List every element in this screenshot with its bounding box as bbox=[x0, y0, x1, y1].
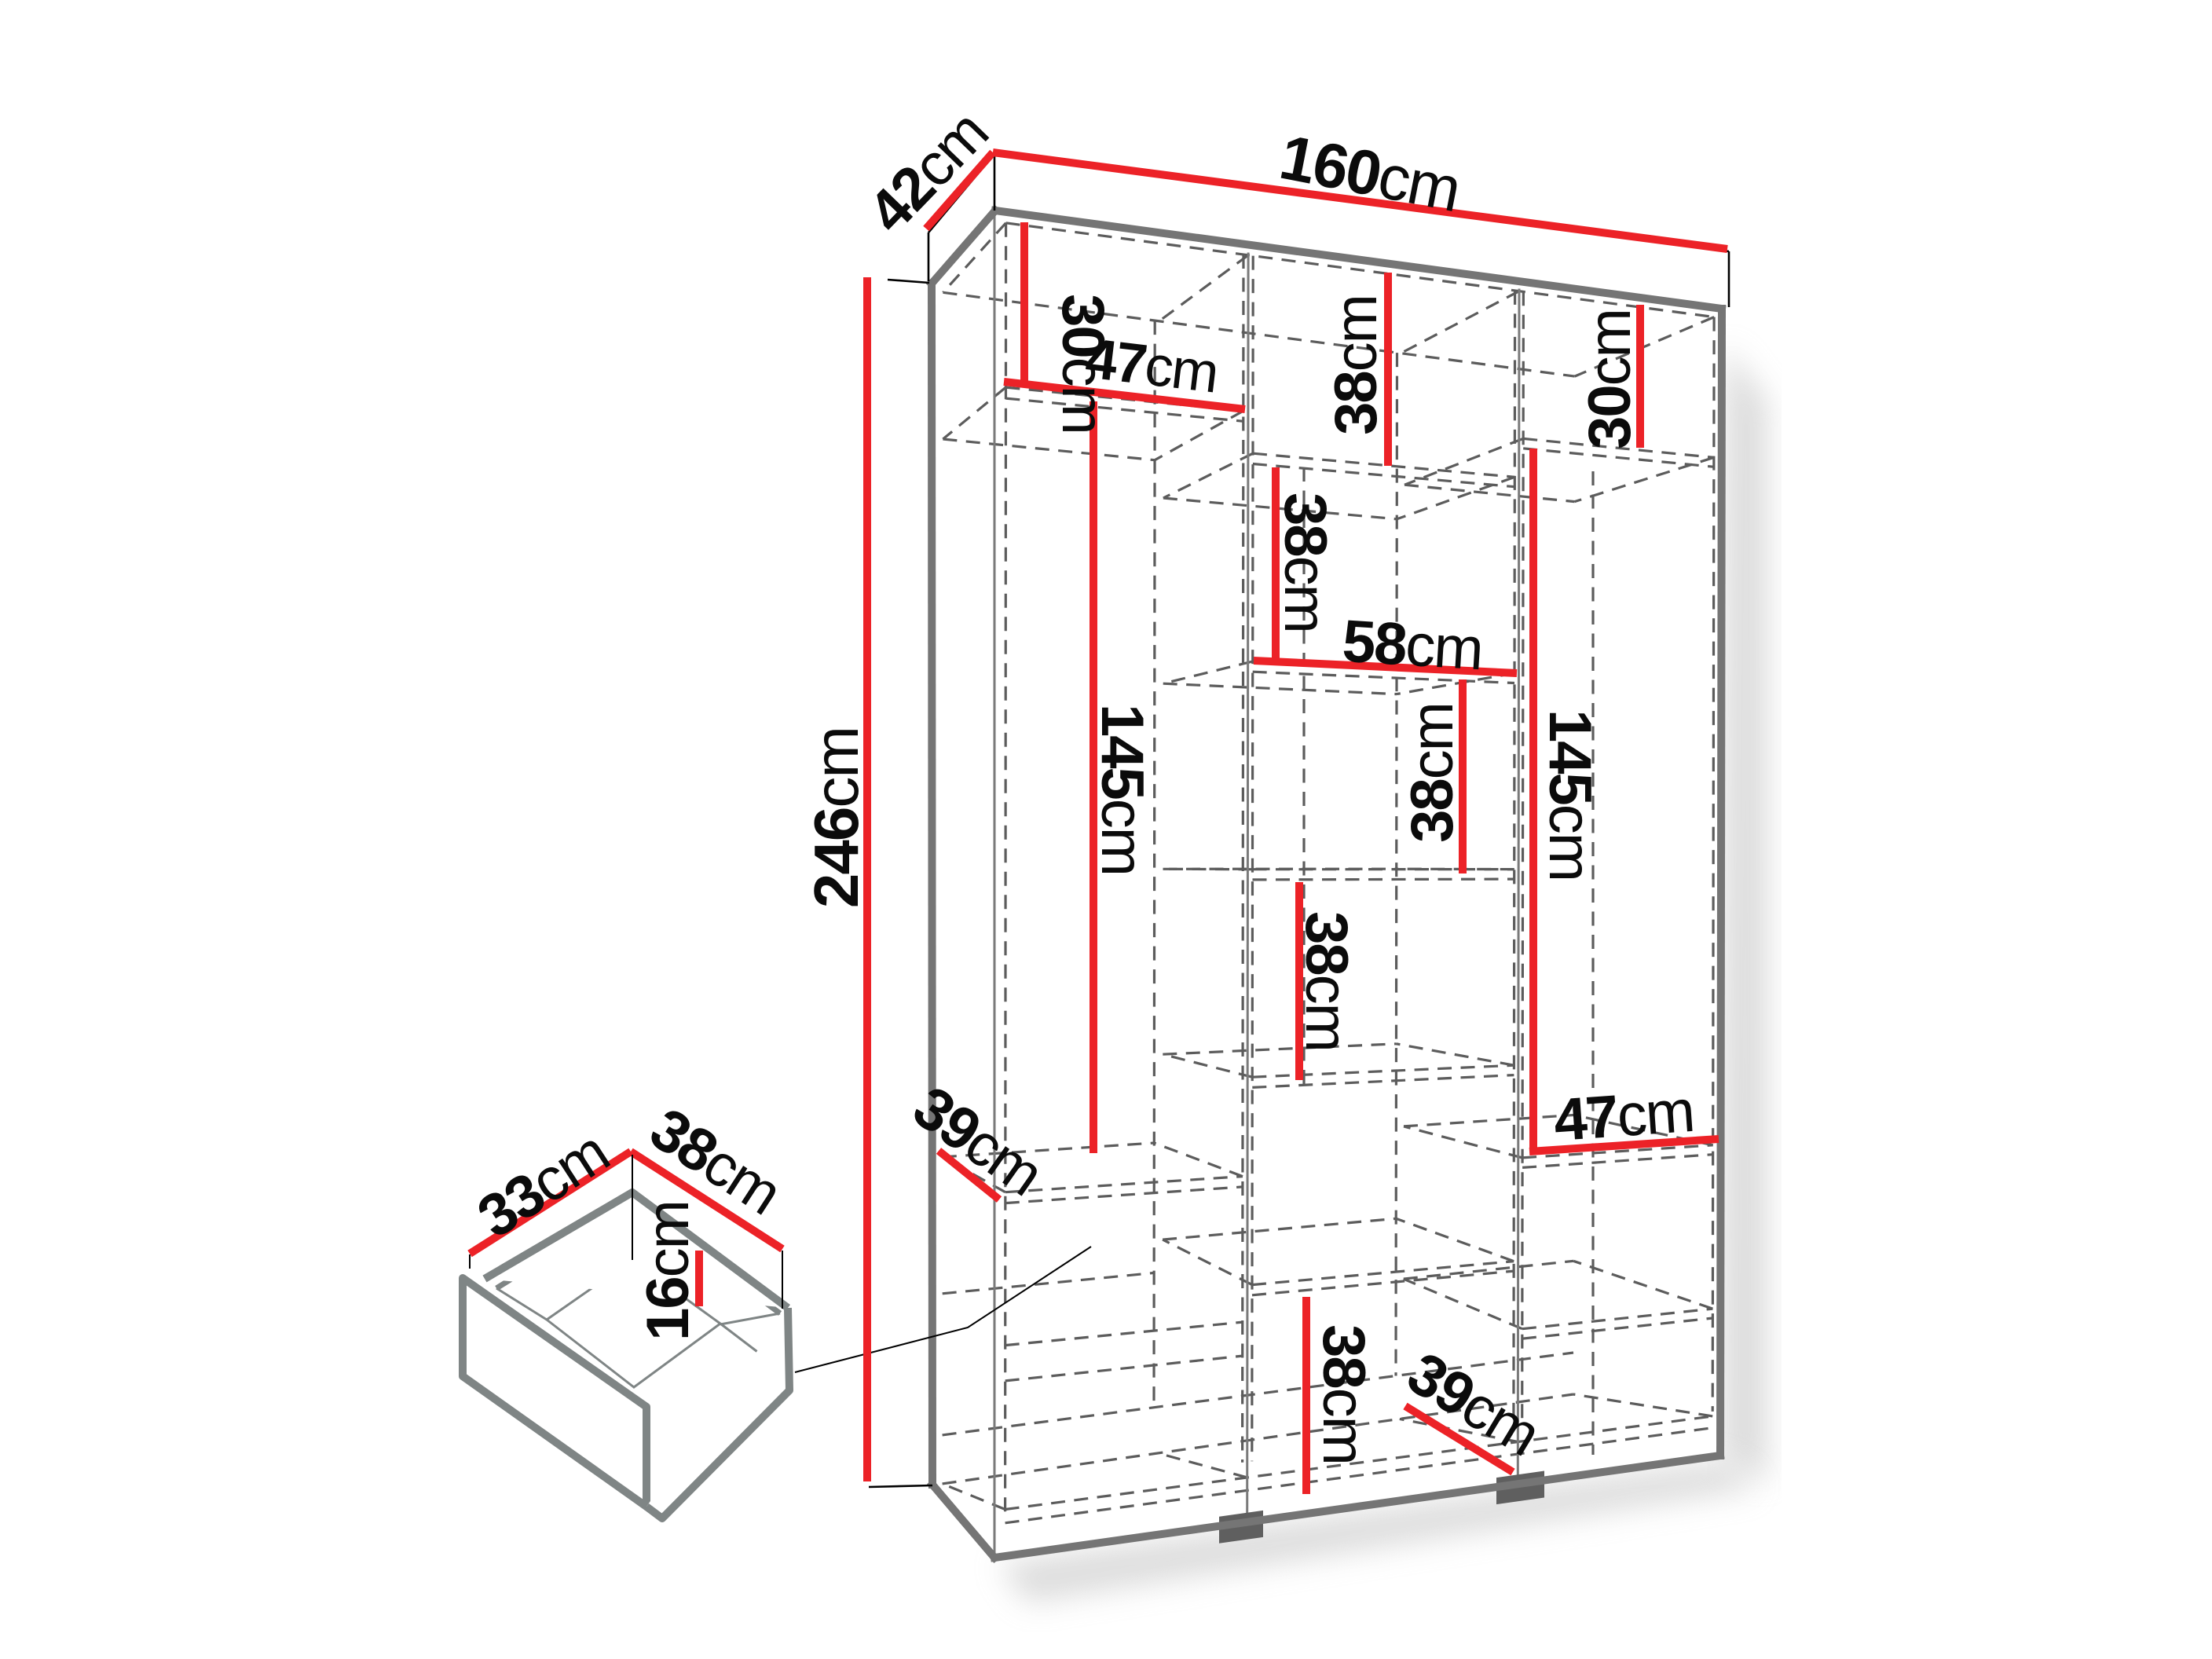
svg-text:58cm: 58cm bbox=[1341, 607, 1485, 683]
svg-text:38cm: 38cm bbox=[1294, 911, 1361, 1051]
svg-text:38cm: 38cm bbox=[1399, 703, 1466, 843]
svg-text:38cm: 38cm bbox=[1311, 1324, 1378, 1464]
svg-text:38cm: 38cm bbox=[1323, 295, 1390, 435]
svg-text:38cm: 38cm bbox=[1273, 493, 1339, 632]
svg-text:47cm: 47cm bbox=[1551, 1077, 1695, 1153]
svg-text:16cm: 16cm bbox=[635, 1201, 701, 1341]
svg-text:30cm: 30cm bbox=[1577, 309, 1643, 449]
svg-text:145cm: 145cm bbox=[1090, 704, 1156, 875]
svg-text:246cm: 246cm bbox=[801, 727, 871, 908]
svg-text:145cm: 145cm bbox=[1537, 709, 1604, 881]
